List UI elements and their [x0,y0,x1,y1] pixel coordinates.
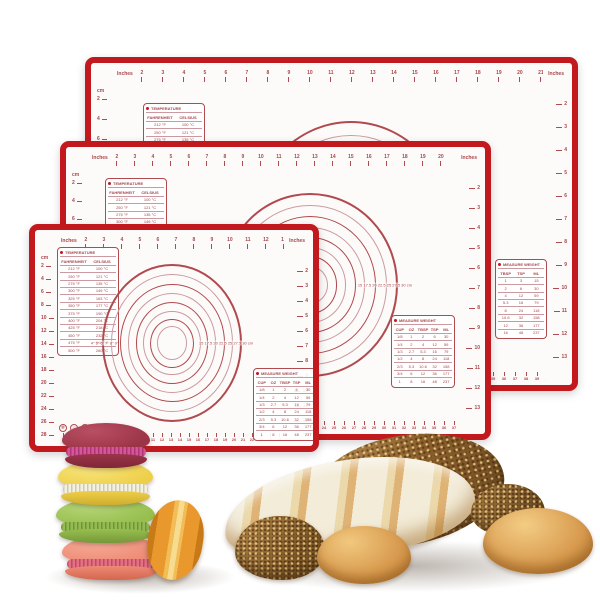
ruler-tick: 13 [280,237,284,249]
inch-ruler-right: 2345678910111213 [549,101,567,373]
ruler-tick: 7 [172,237,180,249]
ruler-tick: 21 [455,154,456,166]
golden-roll-center [317,526,411,584]
inches-label: Inches [548,71,564,77]
macaron-bottom-shell [59,529,152,543]
ruler-tick: 16 [365,154,373,166]
temperature-table-title: TEMPERATURE [108,181,164,188]
ruler-tick: 11 [462,365,480,371]
ruler-tick: 18 [474,70,482,82]
macaron-bottom-shell [65,454,148,468]
ruler-tick: 6 [185,154,193,166]
ruler-tick: 10 [306,70,314,82]
ruler-tick: 3 [159,70,167,82]
ruler-tick: 4 [462,225,480,231]
ruler-tick: 12 [41,328,57,334]
measure-weight-row: 824118 [498,306,544,313]
ruler-tick: 3 [131,154,139,166]
ruler-tick: 9 [549,262,567,268]
cm-label: cm [41,255,57,261]
ruler-tick: 11 [275,154,283,166]
ruler-tick: 8 [190,237,198,249]
ruler-tick: 20 [516,70,524,82]
bullet-dot-icon [256,372,259,375]
ruler-tick: 3 [290,283,308,289]
measure-weight-row: 1/24824118 [394,355,452,362]
inches-label: Inches [61,238,77,244]
temperature-row: 250 °F121 °C [108,203,164,210]
ruler-tick: 14 [390,70,398,82]
inches-label: Inches [92,155,108,161]
ruler-tick: 18 [41,367,57,373]
ruler-tick: 17 [383,154,391,166]
ruler-tick: 11 [327,70,335,82]
measure-weight-title: MEASURE WEIGHT [498,262,544,269]
ruler-tick: 12 [262,237,270,249]
measure-weight-row: 2630 [498,284,544,291]
ruler-tick: 13 [549,354,567,360]
ruler-tick: 2 [97,96,113,102]
ruler-tick: 13 [369,70,377,82]
measure-weight-row: 1315 [498,277,544,284]
ruler-tick: 38 [524,372,528,383]
ruler-tick: 4 [72,198,88,204]
measure-weight-row: 1/812630 [394,333,452,340]
ruler-tick: 2 [41,263,57,269]
ruler-tick: 36 [502,372,506,383]
ruler-tick: 6 [72,216,88,222]
ruler-tick: 12 [348,70,356,82]
inches-label: Inches [117,71,133,77]
ruler-tick: 24 [41,406,57,412]
measure-weight-rows: 1/8126301/42412591/32.75.316791/24824118… [394,333,452,385]
ruler-tick: 16 [41,354,57,360]
ruler-tick: 8 [221,154,229,166]
ruler-tick: 10 [257,154,265,166]
ruler-tick: 37 [513,372,517,383]
measure-weight-row: 10.632158 [498,314,544,321]
ruler-tick: 5 [201,70,209,82]
measure-weight-row: 1/812630 [256,386,313,393]
measure-weight-row: 2/35.310.632158 [394,362,452,369]
ruler-tick: 3 [549,124,567,130]
ruler-tick: 4 [180,70,188,82]
ruler-tick: 7 [462,285,480,291]
dough-size-circles: 4" 5" 6" 7" 8" 9" 15 17.5 20 22.5 25 27.… [102,264,242,422]
ruler-tick: 5 [462,245,480,251]
measure-weight-rows: 13152630412595.3167982411810.63215812361… [498,277,544,336]
measure-weight-title: MEASURE WEIGHT [394,318,452,325]
ruler-tick: 9 [462,325,480,331]
ruler-tick: 12 [549,331,567,337]
ruler-tick: 2 [290,268,308,274]
macaron-bottom-shell [65,566,157,580]
circle-center-gap [137,341,179,346]
ruler-tick: 6 [154,237,162,249]
ruler-tick: 6 [549,193,567,199]
measure-weight-row: 5.31679 [498,299,544,306]
measure-weight-table: MEASURE WEIGHT TBSPTSPML 13152630412595.… [495,259,547,339]
golden-roll-right [483,508,593,574]
ruler-tick: 10 [462,345,480,351]
ruler-tick: 4 [41,276,57,282]
inch-ruler-top: Inches 23456789101112131415161718192021 … [117,70,564,86]
ruler-tick: 19 [419,154,427,166]
temperature-table-title: TEMPERATURE [60,250,116,257]
ruler-tick: 9 [239,154,247,166]
seeded-roll-left [235,516,325,580]
ruler-tick: 4 [549,147,567,153]
ruler-tick: 11 [549,308,567,314]
ruler-tick: 3 [462,205,480,211]
cm-label: cm [72,172,88,178]
measure-weight-row: 2/35.310.632158 [256,415,313,422]
measure-weight-row: 1/4241259 [256,393,313,400]
ruler-tick: 8 [549,239,567,245]
ruler-tick: 5 [136,237,144,249]
macaron-bottom-shell [61,491,150,505]
temperature-row: 212 °F100 °C [146,121,202,128]
measure-weight-row: 1/32.75.31679 [394,348,452,355]
ruler-tick: 15 [347,154,355,166]
ruler-tick: 7 [549,216,567,222]
ruler-tick: 8 [264,70,272,82]
cm-ruler-left: cm 246810121416182022242628 [41,254,57,438]
inch-ruler-ticks: 23456789101112131415161718192021 [113,154,456,166]
measure-weight-row: 1/32.75.31679 [256,401,313,408]
ruler-tick: 7 [243,70,251,82]
measure-weight-table: MEASURE WEIGHT CUPOZTBSPTSPML 1/8126301/… [391,315,455,388]
ruler-tick: 4 [97,116,113,122]
ruler-tick: 2 [549,101,567,107]
inch-ruler-right: 2345678910111213 [462,185,480,422]
bullet-dot-icon [146,107,149,110]
cm-ruler-ticks: 246810121416182022242628 [41,263,57,438]
macaron [62,423,150,469]
ruler-tick: 17 [453,70,461,82]
measure-weight-row: 3/461236177 [394,370,452,377]
inches-label: Inches [461,155,477,161]
temperature-table-title: TEMPERATURE [146,106,202,113]
ruler-tick: 39 [535,372,539,383]
ruler-tick: 2 [138,70,146,82]
ruler-tick: 10 [549,285,567,291]
measure-weight-row: 1/24824118 [256,408,313,415]
temperature-row: 212 °F100 °C [108,196,164,203]
ruler-tick: 5 [290,313,308,319]
ruler-tick: 5 [167,154,175,166]
ruler-tick: 12 [293,154,301,166]
cm-label: cm [97,88,113,94]
ruler-tick: 9 [208,237,216,249]
ruler-tick: 4 [290,298,308,304]
ruler-tick: 7 [290,343,308,349]
bread-group [215,430,600,598]
ruler-tick: 13 [462,405,480,411]
ruler-tick: 13 [311,154,319,166]
ruler-tick: 35 [491,372,495,383]
measure-weight-row: 1/4241259 [394,340,452,347]
ruler-tick: 6 [290,328,308,334]
ruler-tick: 15 [411,70,419,82]
ruler-tick: 18 [401,154,409,166]
temperature-row: 250 °F121 °C [146,128,202,135]
ruler-tick: 5 [549,170,567,176]
ruler-tick: 4 [118,237,126,249]
ruler-tick: 8 [462,305,480,311]
ruler-tick: 10 [226,237,234,249]
ruler-tick: 22 [41,393,57,399]
ruler-tick: 2 [113,154,121,166]
ruler-tick: 8 [41,302,57,308]
ruler-tick: 19 [495,70,503,82]
ruler-tick: 2 [462,185,480,191]
measure-weight-row: 41259 [498,292,544,299]
ruler-tick: 16 [432,70,440,82]
temperature-row: 275 °F135 °C [108,211,164,218]
circle-sizes-inches: 4" 5" 6" 7" 8" 9" [91,341,118,346]
measure-weight-row: 1236177 [498,321,544,328]
bullet-dot-icon [498,263,501,266]
ruler-tick: 7 [203,154,211,166]
ruler-tick: 12 [462,385,480,391]
ruler-tick: 6 [41,289,57,295]
ruler-tick: 6 [222,70,230,82]
macaron-stack [50,418,230,596]
ruler-tick: 8 [290,358,308,364]
ruler-tick: 2 [72,180,88,186]
product-photo: Inches 23456789101112131415161718192021 … [0,0,600,600]
bullet-dot-icon [108,182,111,185]
circle-sizes-cm: 15 17.5 20 22.5 25 27.5 30 cm [199,341,253,346]
ruler-tick: 14 [329,154,337,166]
inch-ruler-ticks: 23456789101112131415161718192021 [138,70,543,82]
bullet-dot-icon [60,251,63,254]
ruler-tick: 6 [462,265,480,271]
ruler-tick: 9 [285,70,293,82]
inches-label: Inches [289,238,305,244]
inch-ruler-top: Inches 23456789101112131415161718192021 … [92,154,477,170]
ruler-tick: 14 [41,341,57,347]
measure-weight-row: 1648237 [498,329,544,336]
measure-weight-row: 181648237 [394,377,452,384]
ruler-tick: 11 [244,237,252,249]
ruler-tick: 10 [41,315,57,321]
bullet-dot-icon [394,319,397,322]
measure-weight-title: MEASURE WEIGHT [256,371,313,378]
ruler-tick: 20 [41,380,57,386]
dough-circle-sizes: 4" 5" 6" 7" 8" 9" 15 17.5 20 22.5 25 27.… [91,341,253,346]
ruler-tick: 4 [149,154,157,166]
mat-print: Inches 23456789101112131415161718192021 … [35,230,313,446]
ruler-tick: 21 [537,70,543,82]
ruler-tick: 20 [437,154,445,166]
circle-sizes-cm: 15 17.5 20 22.5 25 27.5 30 cm [358,283,412,288]
